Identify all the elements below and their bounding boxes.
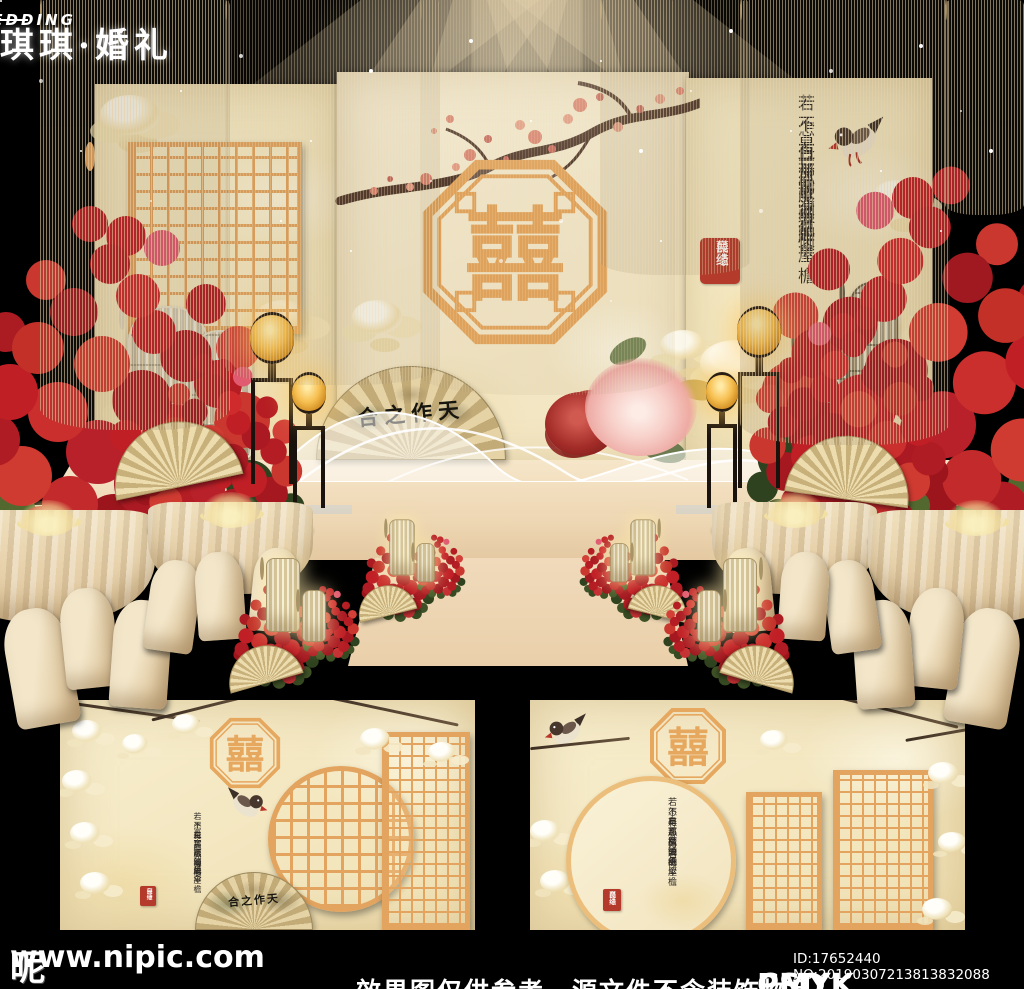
wedding-seal: 囍结 良缘 <box>603 889 621 911</box>
lattice-panel <box>746 792 822 930</box>
poem-line: 白首度经年 <box>190 831 204 876</box>
aisle-decor-cluster <box>678 540 793 690</box>
lantern-stand <box>707 424 737 508</box>
lattice-panel <box>382 732 470 930</box>
disclaimer-text: 效果图仅供参考，源文件不含装饰物品 <box>356 972 815 989</box>
centerpiece <box>766 492 824 528</box>
wedding-seal: 囍结 良缘 <box>140 886 156 906</box>
lantern-stand <box>293 426 325 508</box>
aisle-decor-cluster <box>589 497 687 625</box>
hanging-lamp <box>225 0 440 385</box>
octagon-window: 囍 <box>208 716 282 790</box>
pleated-fan <box>719 636 803 693</box>
magnolia-bloom <box>62 770 92 792</box>
lattice-panel <box>833 770 933 930</box>
aisle-decor-cluster <box>359 497 457 625</box>
cream-lantern <box>723 558 757 632</box>
magnolia-bloom <box>80 872 110 894</box>
magnolia-bloom <box>172 714 200 734</box>
octagon-window: 囍 <box>648 706 728 786</box>
lantern-stand <box>251 378 293 484</box>
magnolia-bloom <box>928 762 958 784</box>
magnolia-bloom <box>360 728 390 750</box>
magnolia-bloom <box>428 742 456 762</box>
circle-art-panel: 若不是忘携油纸伞 怎有那蔽雨的屋檐 一心为君倾 白首度经年 囍结 良缘 <box>566 776 736 930</box>
double-happiness-character: 囍 <box>226 733 264 778</box>
lantern-neck <box>719 412 725 424</box>
site-url: www.nipic.com <box>10 940 265 975</box>
cream-lantern <box>630 519 656 575</box>
hanging-lamp <box>600 0 750 275</box>
magnolia-bloom <box>122 734 148 754</box>
hanging-lamp <box>740 0 950 445</box>
magnolia-bloom <box>70 822 100 844</box>
hanging-lamp <box>945 0 1024 215</box>
preview-backdrop-right: 囍 若不是忘携油纸伞 怎有那蔽雨的屋檐 一心为君倾 白首度经年 囍结 良缘 <box>530 700 965 930</box>
colormode-label: CMYK <box>757 968 854 989</box>
centerpiece <box>947 500 1005 536</box>
rose-arrangement <box>438 571 443 576</box>
poem-text: 若不是忘携油纸伞 怎有那蔽雨的屋檐 一心为君倾 白首度经年 <box>619 797 679 927</box>
magnolia-bloom <box>922 898 952 920</box>
fan-inscription: 合之作天 <box>196 887 313 913</box>
double-happiness-character: 囍 <box>667 723 709 772</box>
rose-arrangement <box>602 571 607 576</box>
cream-lantern <box>266 558 300 632</box>
preview-backdrop-left: 囍 若不是忘携油纸伞 怎有那蔽雨的屋檐 一心为君倾 白首度经年 囍结 良缘 合之… <box>60 700 475 930</box>
pleated-fan <box>220 636 304 693</box>
aisle-decor-cluster <box>230 540 345 690</box>
twig <box>311 700 458 727</box>
pleated-fan <box>352 579 417 623</box>
lantern-neck <box>306 414 312 426</box>
poem-text: 若不是忘携油纸伞 怎有那蔽雨的屋檐 一心为君倾 白首度经年 <box>152 812 204 908</box>
magnolia-bloom <box>540 870 570 892</box>
magnolia-bloom <box>760 730 788 750</box>
cream-lantern <box>416 543 435 582</box>
centerpiece <box>19 500 77 536</box>
magnolia-bloom <box>530 820 560 842</box>
rose-arrangement <box>690 629 696 635</box>
bird-icon <box>540 710 588 758</box>
magnolia-bloom <box>938 832 965 852</box>
sparkles <box>0 0 2 2</box>
floor-lantern <box>706 372 738 412</box>
cream-lantern <box>610 543 629 582</box>
wedding-stage-design-scene: 囍 若不是忘携油纸伞 怎有那蔽雨的屋檐 一心为君倾 白首度经年 囍结 良缘 合之… <box>0 0 1024 989</box>
centerpiece <box>202 492 260 528</box>
seal-text-left: 良缘 <box>608 891 615 905</box>
rose-arrangement <box>327 629 333 635</box>
bird-icon <box>226 784 272 830</box>
magnolia-bloom <box>72 720 102 742</box>
cream-lantern <box>302 590 326 642</box>
subtitle-line <box>0 19 28 21</box>
poem-line: 白首度经年 <box>663 816 679 866</box>
seal-text-left: 良缘 <box>145 888 151 900</box>
cream-lantern <box>697 590 721 642</box>
